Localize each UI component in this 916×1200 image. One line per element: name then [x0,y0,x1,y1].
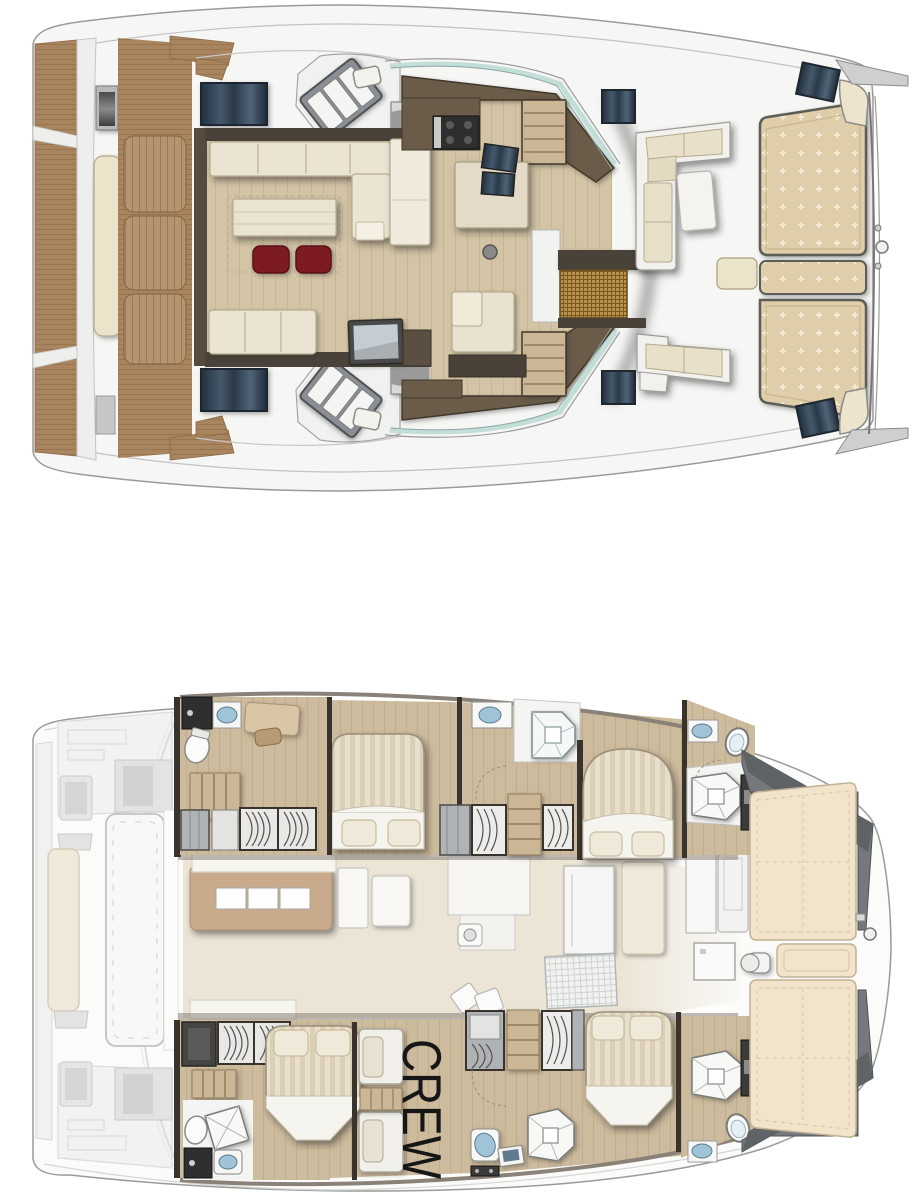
svg-text:CREW: CREW [391,1039,453,1179]
